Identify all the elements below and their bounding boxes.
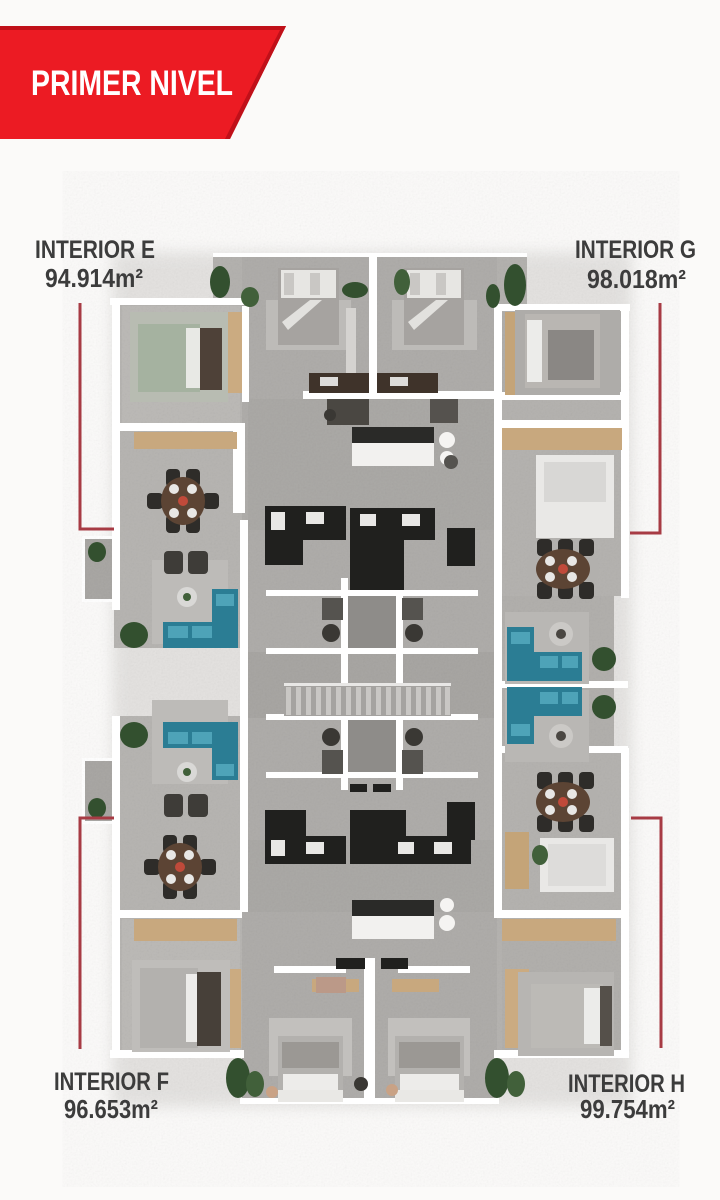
svg-text:94.914m²: 94.914m² xyxy=(45,263,143,293)
svg-text:98.018m²: 98.018m² xyxy=(587,264,686,294)
svg-text:INTERIOR E: INTERIOR E xyxy=(35,237,155,264)
svg-text:PRIMER NIVEL: PRIMER NIVEL xyxy=(31,63,233,103)
svg-text:96.653m²: 96.653m² xyxy=(64,1094,158,1124)
svg-text:99.754m²: 99.754m² xyxy=(580,1094,675,1124)
svg-text:INTERIOR G: INTERIOR G xyxy=(575,237,696,264)
svg-text:INTERIOR F: INTERIOR F xyxy=(54,1069,169,1096)
